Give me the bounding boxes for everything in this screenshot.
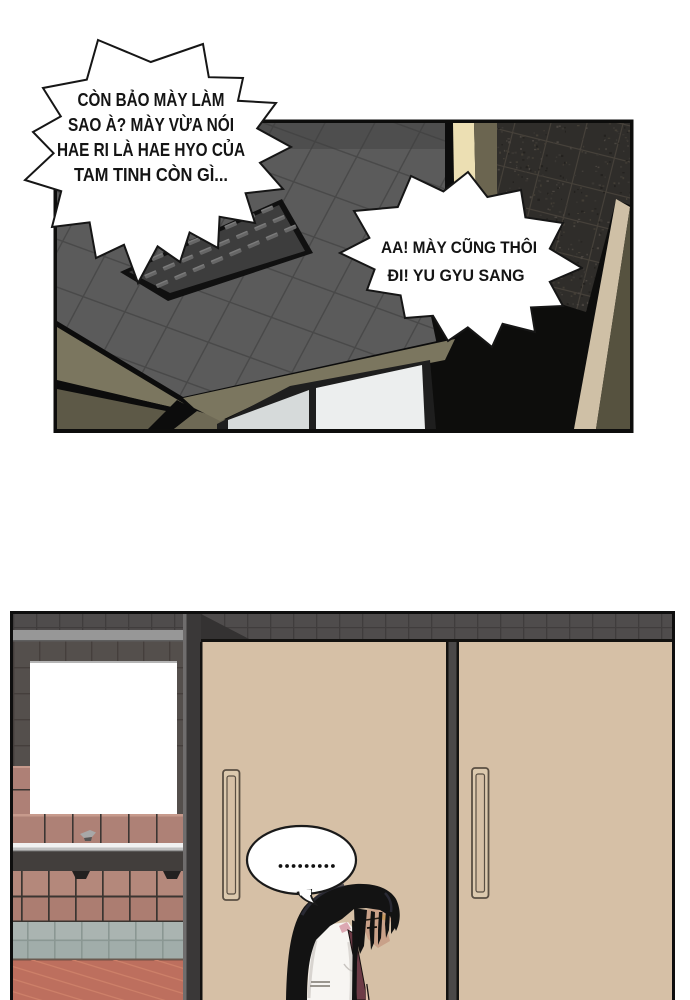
svg-text:AA! MÀY CŨNG THÔI: AA! MÀY CŨNG THÔI bbox=[381, 237, 537, 257]
svg-text:HAE RI LÀ HAE HYO CỦA: HAE RI LÀ HAE HYO CỦA bbox=[57, 139, 245, 160]
svg-text:SAO À? MÀY VỪA NÓI: SAO À? MÀY VỪA NÓI bbox=[68, 114, 234, 135]
svg-text:ĐI! YU GYU SANG: ĐI! YU GYU SANG bbox=[388, 266, 525, 285]
svg-text:CÒN BẢO MÀY LÀM: CÒN BẢO MÀY LÀM bbox=[78, 89, 225, 110]
svg-text:TAM TINH CÒN GÌ...: TAM TINH CÒN GÌ... bbox=[74, 164, 228, 185]
